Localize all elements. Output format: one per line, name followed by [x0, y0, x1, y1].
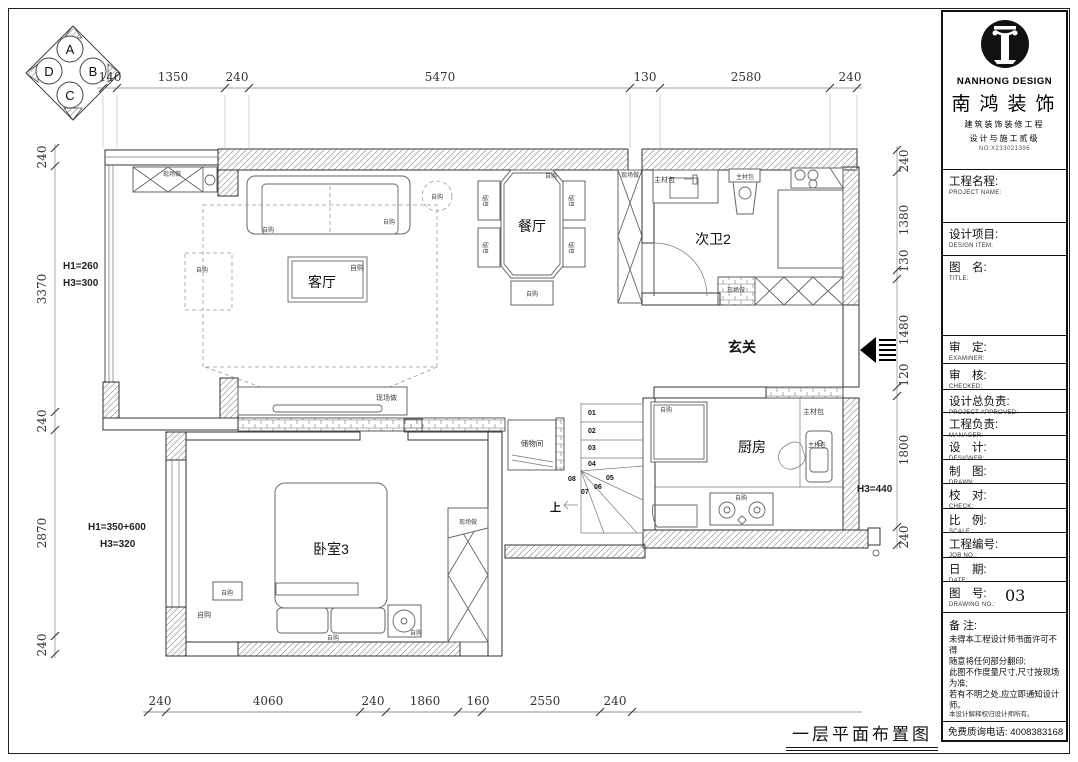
tag-self-buy: 自购 — [196, 266, 208, 274]
stair-step-04: 04 — [588, 461, 596, 468]
room-label-dining: 餐厅 — [518, 218, 546, 234]
dim-right-4: 120 — [897, 364, 911, 387]
entry: 玄关 — [728, 337, 896, 363]
bathroom-door — [654, 243, 707, 296]
field-project-name: 工程名程: PROJECT NAME: — [943, 170, 1066, 223]
field-title: 图 名: TITLE: — [943, 256, 1066, 336]
tag-site-made: 现场做 — [727, 286, 745, 294]
room-label-entry: 玄关 — [728, 339, 756, 355]
stair-step-07: 07 — [581, 489, 589, 496]
tag-site-made: 现场做 — [163, 170, 181, 178]
entry-arrow-icon — [860, 337, 876, 363]
dim-top-4: 130 — [634, 70, 657, 84]
brand-en: NANHONG DESIGN — [943, 76, 1066, 87]
cert-no: NO:X233021396 — [943, 146, 1066, 152]
dim-top-5: 2580 — [731, 70, 762, 84]
bedroom: 现场做 卧室3 自购 自购 自购 自购 — [166, 419, 502, 656]
tag-self-buy: 自购 — [383, 218, 395, 226]
tag-site-made: 现场做 — [621, 171, 639, 179]
notes-section: 备 注: 未得本工程设计师书面许可不得 随意将任何部分翻印; 此图不作度量尺寸,… — [943, 613, 1066, 722]
plant — [778, 442, 805, 469]
dim-right-1: 1380 — [897, 205, 911, 236]
dim-left-3: 2870 — [35, 518, 49, 549]
room-label-bath: 次卫2 — [695, 231, 731, 247]
room-label-storage: 储物间 — [521, 438, 544, 448]
nanhong-logo-icon — [979, 18, 1031, 70]
dim-right-6: 240 — [897, 526, 911, 549]
kitchen: 自购 厨房 主材包 主材包 自购 — [643, 387, 843, 530]
annotation-h1-260: H1=260 — [63, 261, 99, 272]
bathroom: 主材包 主材包 现场做 次卫2 — [642, 168, 843, 305]
tag-material-pkg: 主材包 — [808, 441, 826, 449]
drawing-title: 一层平面布置图 — [786, 720, 938, 751]
tag-site-made: 现场做 — [459, 518, 477, 526]
hotline: 免费质询电话: 4008383168 — [943, 722, 1066, 740]
dim-left-4: 240 — [35, 634, 49, 657]
stair-step-08: 08 — [568, 476, 576, 483]
marker-letter-d: D — [44, 64, 53, 79]
tag-self-buy: 自购 — [482, 195, 490, 207]
pillow — [277, 608, 328, 633]
stairs-up-label: 上 — [550, 500, 561, 514]
field-check: 校 对: CHECK: — [943, 484, 1066, 509]
field-designer: 设 计: DESIGNER: — [943, 436, 1066, 460]
tag-self-buy: 自购 — [482, 242, 490, 254]
tag-site-made: 现场做 — [376, 393, 397, 402]
dim-top-2: 240 — [226, 70, 249, 84]
floor-plan-page: A B C D 140 1350 240 5470 130 2580 240 — [0, 0, 1078, 762]
tag-material-pkg: 主材包 — [654, 175, 675, 184]
tall-cabinet — [618, 170, 642, 303]
dim-top-6: 240 — [839, 70, 862, 84]
dim-top-1: 1350 — [158, 70, 189, 84]
marker-letter-a: A — [66, 42, 75, 57]
entry-cabinet — [133, 167, 217, 192]
field-scale: 比 例: SCALE: — [943, 509, 1066, 533]
stair-step-02: 02 — [588, 428, 596, 435]
dim-top-3: 5470 — [425, 70, 456, 84]
dim-bottom-1: 4060 — [253, 694, 284, 708]
pillow — [331, 608, 385, 633]
dim-left-0: 240 — [35, 146, 49, 169]
tag-self-buy: 自购 — [327, 634, 339, 642]
annotation-h1-350: H1=350+600 — [88, 522, 146, 533]
dim-right-0: 240 — [897, 150, 911, 173]
dim-bottom-4: 160 — [467, 694, 490, 708]
annotation-h3-300: H3=300 — [63, 278, 99, 289]
living-room: 现场做 自购 自购 自购 自购 客厅 自购 现场做 — [133, 167, 452, 415]
dim-left-2: 240 — [35, 410, 49, 433]
room-label-kitchen: 厨房 — [738, 439, 766, 455]
title-block: NANHONG DESIGN 南鸿装饰 建筑装饰装修工程 设计与施工贰级 NO:… — [941, 10, 1068, 742]
stair-step-03: 03 — [588, 445, 596, 452]
corner-counter — [653, 505, 698, 527]
brand-cn: 南鸿装饰 — [949, 89, 1066, 116]
logo-section: NANHONG DESIGN 南鸿装饰 建筑装饰装修工程 设计与施工贰级 NO:… — [943, 12, 1066, 170]
stair-step-05: 05 — [606, 475, 614, 482]
field-project-approved: 设计总负责: PROJECT APPROVED: — [943, 390, 1066, 413]
dim-right-2: 130 — [897, 250, 911, 273]
dim-bottom: 240 4060 240 1860 160 2550 240 — [143, 694, 862, 716]
tag-self-buy: 自购 — [350, 263, 364, 272]
dim-bottom-2: 240 — [362, 694, 385, 708]
stair-step-01: 01 — [588, 410, 596, 417]
annotation-h3-320: H3=320 — [100, 539, 136, 550]
field-drawing-no: 图 号: DRAWING NO.: 03 — [943, 582, 1066, 613]
dim-right-5: 1800 — [897, 435, 911, 466]
tag-material-pkg: 主材包 — [803, 407, 824, 416]
tag-self-buy: 自购 — [262, 226, 274, 234]
cert-line-2: 设计与施工贰级 — [943, 133, 1066, 144]
dim-bottom-0: 240 — [149, 694, 172, 708]
cert-line-1: 建筑装饰装修工程 — [943, 119, 1066, 130]
dining-room: 餐厅 自购 自购 自购 自购 自购 自购 现场做 — [478, 170, 642, 305]
tag-self-buy: 自购 — [568, 242, 576, 254]
tag-self-buy: 自购 — [197, 610, 211, 619]
annotation-h3-440: H3=440 — [857, 484, 893, 495]
dim-bottom-3: 1860 — [410, 694, 441, 708]
marker-letter-b: B — [89, 64, 98, 79]
field-checked: 审 核: CHECKED: — [943, 364, 1066, 390]
field-examiner: 审 定: EXAMINER: — [943, 336, 1066, 364]
tag-material-pkg: 主材包 — [736, 173, 754, 181]
tag-self-buy: 自购 — [568, 195, 576, 207]
tag-self-buy: 自购 — [410, 629, 422, 637]
field-job-no: 工程编号: JOB NO.: — [943, 533, 1066, 558]
room-label-bedroom: 卧室3 — [313, 541, 349, 557]
tag-self-buy: 自购 — [526, 290, 538, 298]
dim-left: 240 3370 240 2870 240 — [35, 144, 59, 658]
drawing-number: 03 — [1005, 586, 1025, 605]
field-drawn: 制 图: DRAWN: — [943, 460, 1066, 484]
tag-self-buy: 自购 — [660, 406, 672, 414]
storage-room: 储物间 — [508, 418, 564, 470]
room-label-living: 客厅 — [308, 274, 336, 290]
dim-right-3: 1480 — [897, 315, 911, 346]
stair-step-06: 06 — [594, 484, 602, 491]
dim-right: 240 1380 130 1480 120 1800 240 — [893, 146, 911, 549]
tag-self-buy: 自购 — [431, 193, 443, 201]
dim-bottom-6: 240 — [604, 694, 627, 708]
floor-plan-canvas: A B C D 140 1350 240 5470 130 2580 240 — [0, 0, 940, 762]
dim-top-0: 140 — [99, 70, 122, 84]
field-manager: 工程负责: MANAGER: — [943, 413, 1066, 436]
tag-self-buy: 自购 — [545, 172, 557, 180]
tag-self-buy: 自购 — [735, 494, 747, 502]
tag-self-buy: 自购 — [221, 589, 233, 597]
marker-letter-c: C — [65, 88, 74, 103]
field-design-item: 设计项目: DESIGN ITEM: — [943, 223, 1066, 256]
dim-left-1: 3370 — [35, 274, 49, 305]
coffee-table — [185, 253, 232, 310]
dim-bottom-5: 2550 — [530, 694, 561, 708]
field-date: 日 期: DATE: — [943, 558, 1066, 582]
shower — [778, 190, 843, 268]
dim-top: 140 1350 240 5470 130 2580 240 — [97, 70, 862, 148]
